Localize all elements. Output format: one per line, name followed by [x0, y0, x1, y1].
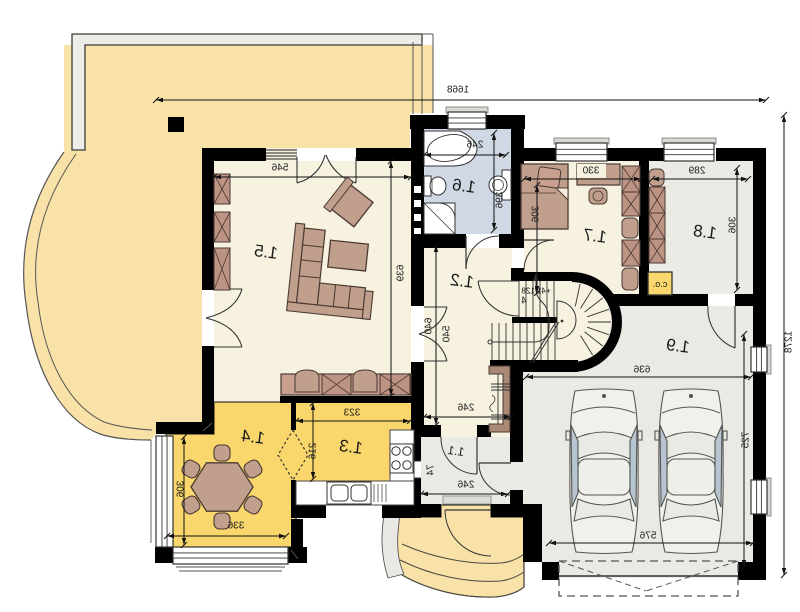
svg-text:216: 216 — [308, 443, 319, 460]
svg-text:540: 540 — [442, 326, 453, 343]
svg-text:1.5: 1.5 — [253, 241, 279, 263]
svg-text:306: 306 — [531, 206, 542, 223]
svg-text:546: 546 — [271, 163, 288, 174]
svg-text:576: 576 — [639, 531, 656, 542]
svg-text:336: 336 — [227, 521, 244, 532]
svg-text:306: 306 — [728, 217, 739, 234]
svg-text:725: 725 — [741, 432, 752, 449]
svg-text:636: 636 — [633, 365, 650, 376]
svg-text:1.6: 1.6 — [451, 175, 477, 197]
svg-text:1.3: 1.3 — [338, 436, 364, 458]
svg-text:1278: 1278 — [784, 331, 795, 354]
svg-text:1.8: 1.8 — [692, 221, 718, 243]
svg-text:1.1: 1.1 — [447, 443, 466, 459]
svg-text:323: 323 — [343, 408, 360, 419]
svg-text:1.9: 1.9 — [665, 335, 691, 357]
svg-text:246: 246 — [457, 403, 474, 414]
svg-text:4: 4 — [521, 296, 527, 307]
svg-text:74: 74 — [426, 464, 437, 476]
svg-text:306: 306 — [176, 481, 187, 498]
svg-text:396: 396 — [495, 192, 506, 209]
svg-text:246: 246 — [466, 140, 483, 151]
svg-text:1.7: 1.7 — [582, 225, 608, 247]
svg-text:246: 246 — [457, 480, 474, 491]
svg-text:1.4: 1.4 — [240, 426, 266, 448]
svg-text:c.o.: c.o. — [653, 279, 668, 289]
svg-text:1668: 1668 — [446, 85, 469, 96]
svg-text:330: 330 — [582, 166, 599, 177]
svg-text:640: 640 — [424, 318, 435, 335]
svg-text:289: 289 — [688, 166, 705, 177]
svg-text:1.2: 1.2 — [449, 270, 475, 292]
svg-text:639: 639 — [396, 265, 407, 282]
